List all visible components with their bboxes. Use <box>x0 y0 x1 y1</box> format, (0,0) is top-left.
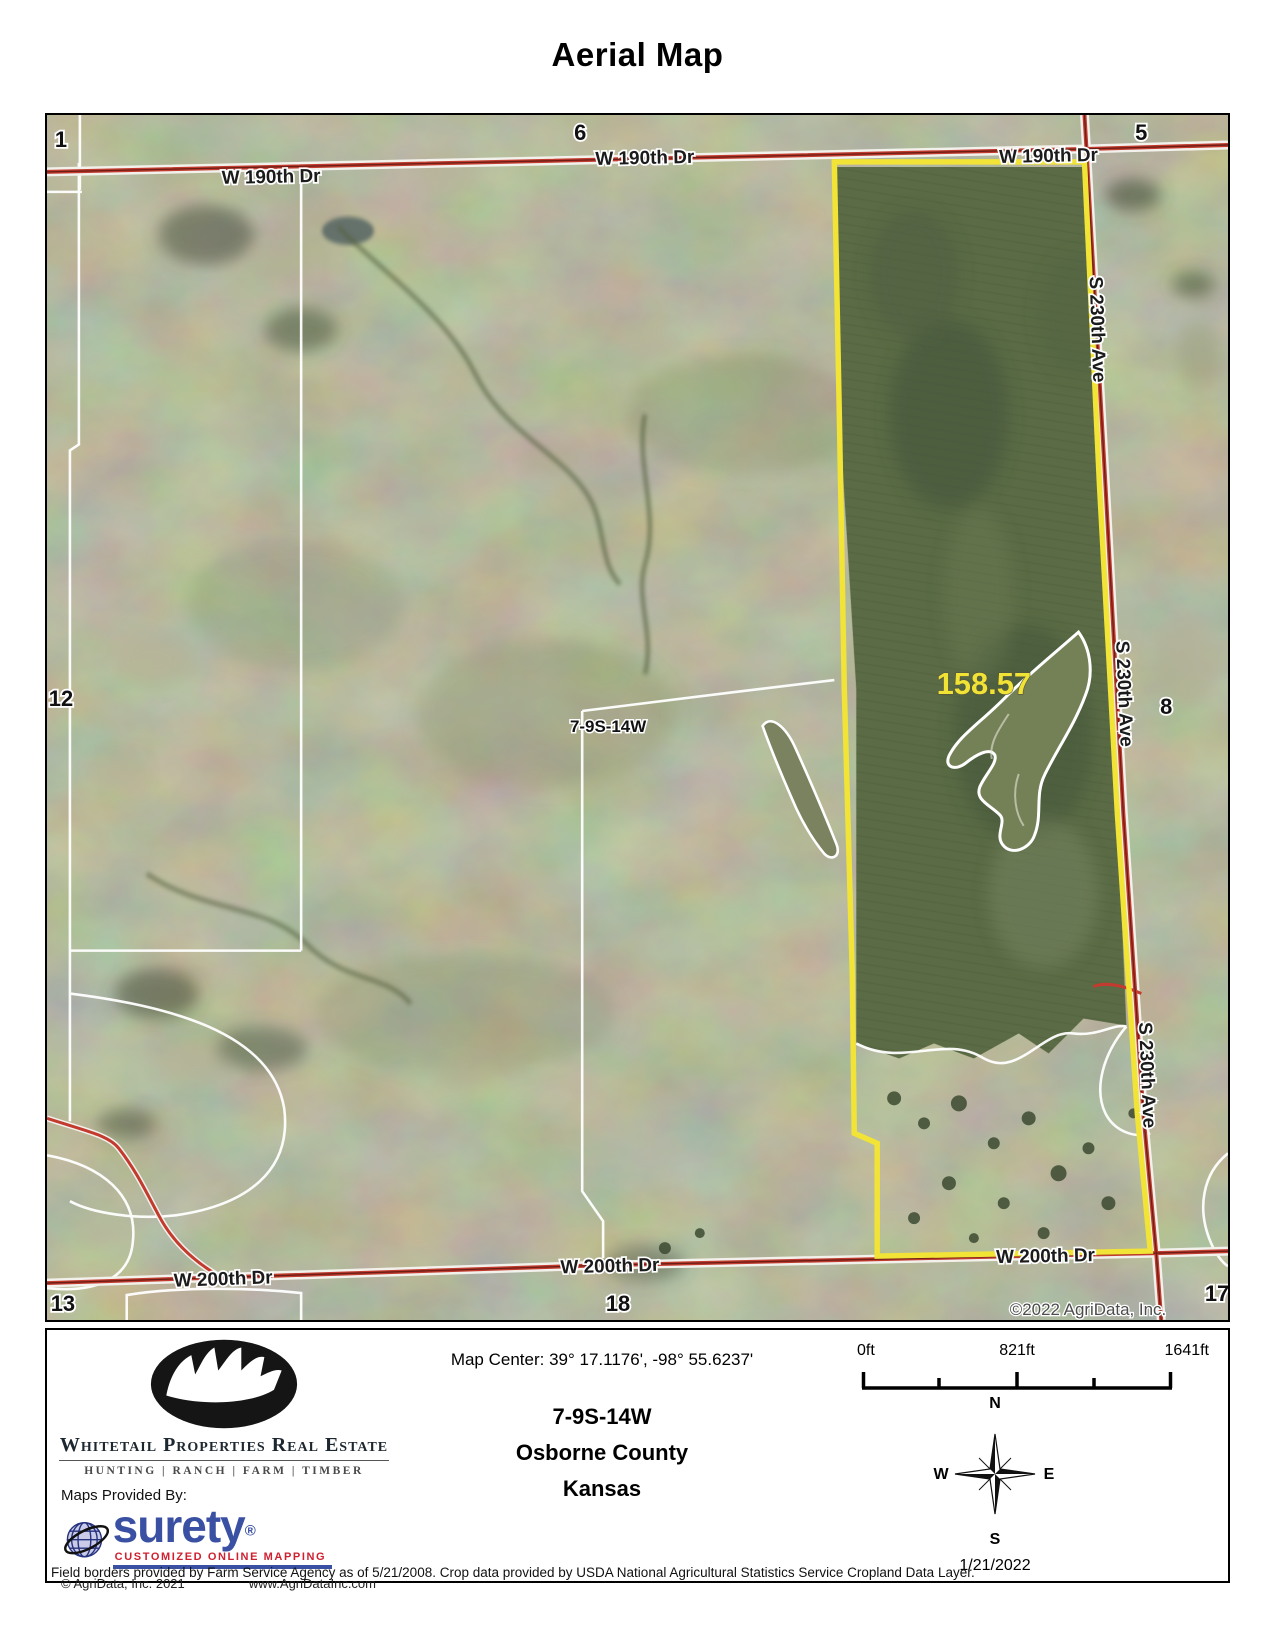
county-text: Osborne County <box>377 1440 827 1466</box>
aerial-map-image: W 190th Dr W 190th Dr W 190th Dr S 230th… <box>45 113 1230 1322</box>
section-number-12: 12 <box>49 686 73 711</box>
crop-field <box>834 167 1126 1059</box>
acreage-label: 158.57 <box>937 666 1031 701</box>
data-source-disclaimer: Field borders provided by Farm Service A… <box>51 1565 1221 1580</box>
company-tagline: HUNTING | RANCH | FARM | TIMBER <box>59 1465 389 1477</box>
map-center-coordinates: Map Center: 39° 17.1176', -98° 55.6237' <box>377 1350 827 1370</box>
footer-center-block: Map Center: 39° 17.1176', -98° 55.6237' … <box>377 1330 827 1502</box>
section-number-18: 18 <box>606 1291 630 1316</box>
surety-globe-icon <box>61 1506 111 1572</box>
map-copyright: ©2022 AgriData, Inc. <box>1010 1300 1166 1319</box>
road-label-w190-right: W 190th Dr <box>999 145 1099 168</box>
section-number-1: 1 <box>55 127 67 152</box>
township-range-label: 7-9S-14W <box>570 717 646 736</box>
scale-bar-ruler <box>817 1362 1217 1392</box>
whitetail-antler-icon <box>134 1334 314 1434</box>
company-name: Whitetail Properties Real Estate <box>59 1434 389 1461</box>
surety-name: surety <box>113 1500 245 1552</box>
aerial-map-canvas: W 190th Dr W 190th Dr W 190th Dr S 230th… <box>47 115 1228 1320</box>
road-label-w200-right: W 200th Dr <box>996 1245 1096 1268</box>
scale-bar: 0ft 821ft 1641ft <box>817 1342 1217 1397</box>
surety-registered-mark: ® <box>245 1523 256 1540</box>
compass-rose-icon: N S W E <box>925 1392 1065 1550</box>
section-number-13: 13 <box>51 1291 75 1316</box>
map-footer: Whitetail Properties Real Estate HUNTING… <box>45 1328 1230 1583</box>
road-label-w200-left: W 200th Dr <box>173 1267 273 1291</box>
compass-south-label: S <box>990 1531 1001 1548</box>
section-number-6: 6 <box>574 120 586 145</box>
surety-wordmark: surety® CUSTOMIZED ONLINE MAPPING <box>113 1506 389 1569</box>
page-title: Aerial Map <box>0 36 1275 74</box>
section-number-5: 5 <box>1135 120 1147 145</box>
pond <box>322 217 374 245</box>
surety-logo: surety® CUSTOMIZED ONLINE MAPPING <box>61 1506 389 1572</box>
section-number-17: 17 <box>1205 1281 1228 1306</box>
road-label-w190-mid: W 190th Dr <box>595 147 695 170</box>
compass-west-label: W <box>933 1466 949 1483</box>
aerial-map-report-page: Aerial Map <box>0 0 1275 1650</box>
scale-middle-label: 821ft <box>977 1342 1057 1360</box>
scale-bar-labels: 0ft 821ft 1641ft <box>817 1342 1217 1362</box>
scale-end-label: 1641ft <box>1165 1342 1209 1360</box>
road-label-w190-left: W 190th Dr <box>221 166 321 189</box>
road-label-w200-mid: W 200th Dr <box>560 1255 660 1279</box>
road-label-s230-top: S 230th Ave <box>1085 276 1110 383</box>
whitetail-logo-block: Whitetail Properties Real Estate HUNTING… <box>59 1334 389 1591</box>
section-number-8: 8 <box>1160 694 1172 719</box>
compass-north-label: N <box>989 1395 1001 1412</box>
township-text: 7-9S-14W <box>377 1404 827 1430</box>
state-text: Kansas <box>377 1476 827 1502</box>
scale-start-label: 0ft <box>857 1342 875 1360</box>
compass-east-label: E <box>1044 1466 1055 1483</box>
compass-rose: N S W E 1/21/2022 <box>925 1392 1065 1575</box>
